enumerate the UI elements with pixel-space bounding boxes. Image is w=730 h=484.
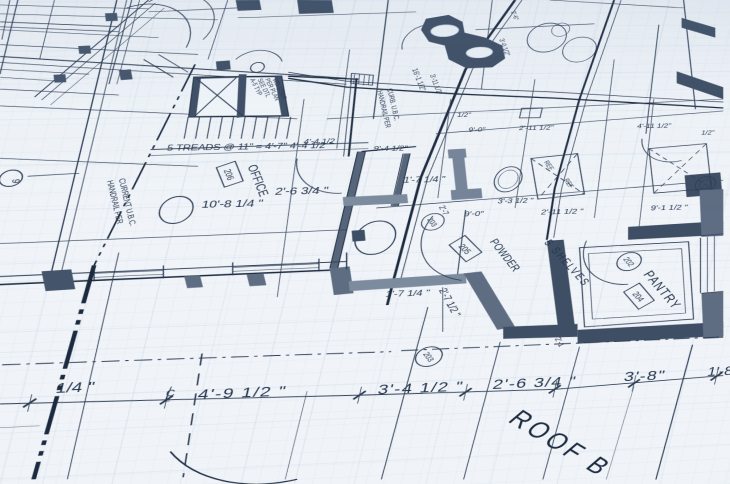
svg-text:1'-7 1/4 ": 1'-7 1/4 " [384, 288, 431, 299]
svg-text:9'-4 1/2": 9'-4 1/2" [373, 144, 409, 152]
svg-text:9'-0": 9'-0" [468, 126, 487, 133]
svg-text:4'-4 1/2: 4'-4 1/2 [303, 137, 336, 145]
svg-text:9'-1 1/2 ": 9'-1 1/2 " [650, 204, 689, 213]
svg-text:10'-8 1/4 ": 10'-8 1/4 " [200, 198, 264, 211]
svg-text:1'-8: 1'-8 [706, 365, 730, 379]
svg-text:3'-3 1/2 ": 3'-3 1/2 " [497, 196, 534, 205]
svg-text:9: 9 [10, 179, 22, 183]
svg-text:1/2": 1/2" [456, 111, 472, 118]
svg-text:2'-11 1/2 ": 2'-11 1/2 " [540, 207, 584, 216]
svg-text:9'-0": 9'-0" [463, 209, 484, 217]
svg-text:3'-8": 3'-8" [623, 367, 668, 384]
svg-text:4'-11 1/2": 4'-11 1/2" [637, 122, 673, 129]
svg-text:1'-7 1/4 ": 1'-7 1/4 " [403, 176, 447, 185]
svg-text:1/2": 1/2" [701, 129, 716, 136]
svg-text:2'-11 1/2": 2'-11 1/2" [518, 124, 554, 132]
